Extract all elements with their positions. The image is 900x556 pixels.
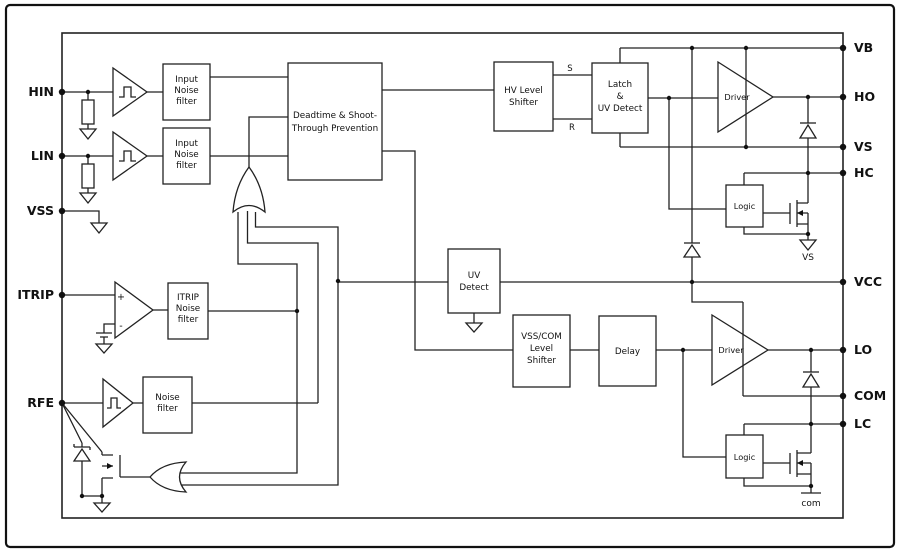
driver-low-label: Driver <box>718 345 744 355</box>
hv-shifter-label: Shifter <box>509 98 538 108</box>
junction-dot <box>336 279 340 283</box>
uv-detect-label: UV <box>468 271 480 281</box>
pin-label-vcc: VCC <box>854 274 882 289</box>
comparator-minus-label: - <box>119 321 122 332</box>
junction-dot <box>806 232 810 236</box>
hv-level-shifter-block <box>494 62 553 131</box>
uv-detect-block <box>448 249 500 313</box>
pin-label-rfe: RFE <box>27 395 54 410</box>
hin-pulldown-resistor <box>82 100 94 124</box>
pin-dot-itrip <box>59 292 65 298</box>
deadtime-label: Through Prevention <box>291 124 378 134</box>
pin-dot-ho <box>840 94 846 100</box>
junction-dot <box>806 95 810 99</box>
vsscom-label: Level <box>530 344 553 354</box>
junction-dot <box>690 280 694 284</box>
hin-filter-label: Noise <box>174 86 198 96</box>
pin-label-lo: LO <box>854 342 872 357</box>
junction-dot <box>744 46 748 50</box>
uv-detect-label: Detect <box>459 283 489 293</box>
itrip-filter-label: ITRIP <box>177 293 199 303</box>
rfe-filter-label: filter <box>157 404 178 414</box>
pin-dot-vcc <box>840 279 846 285</box>
junction-dot <box>744 145 748 149</box>
driver-high-label: Driver <box>724 92 750 102</box>
latch-label: & <box>617 92 624 102</box>
pin-label-ho: HO <box>854 89 875 104</box>
pin-dot-lc <box>840 421 846 427</box>
pin-dot-hc <box>840 170 846 176</box>
junction-dot <box>100 494 104 498</box>
junction-dot <box>681 348 685 352</box>
lin-pulldown-resistor <box>82 164 94 188</box>
pin-dot-com <box>840 393 846 399</box>
pin-dot-lin <box>59 153 65 159</box>
delay-label: Delay <box>615 347 640 357</box>
pin-label-vb: VB <box>854 40 873 55</box>
set-label: S <box>567 64 572 74</box>
junction-dot <box>806 171 810 175</box>
pin-dot-rfe <box>59 400 65 406</box>
lin-filter-label: Noise <box>174 150 198 160</box>
deadtime-label: Deadtime & Shoot- <box>293 111 377 121</box>
diagram-canvas: HIN LIN VSS ITRIP RFE VB HO VS HC VCC LO… <box>0 0 900 556</box>
reset-label: R <box>569 123 575 133</box>
rfe-filter-label: Noise <box>155 393 179 403</box>
lin-filter-label: Input <box>175 139 198 149</box>
pin-label-hin: HIN <box>28 84 54 99</box>
latch-label: Latch <box>608 80 632 90</box>
comparator-plus-label: + <box>117 292 125 303</box>
junction-dot <box>667 96 671 100</box>
itrip-filter-label: filter <box>178 315 199 325</box>
pin-dot-vb <box>840 45 846 51</box>
pin-label-lc: LC <box>854 416 871 431</box>
vsscom-label: Shifter <box>527 356 556 366</box>
lin-filter-label: filter <box>176 161 197 171</box>
vs-reference-label: VS <box>802 253 814 263</box>
logic-high-label: Logic <box>734 201 755 211</box>
junction-dot <box>809 348 813 352</box>
pin-dot-lo <box>840 347 846 353</box>
junction-dot <box>80 494 84 498</box>
junction-dot <box>809 484 813 488</box>
latch-label: UV Detect <box>598 104 643 114</box>
hin-filter-label: filter <box>176 97 197 107</box>
pin-label-vs: VS <box>854 139 873 154</box>
block-diagram: HIN LIN VSS ITRIP RFE VB HO VS HC VCC LO… <box>0 0 900 556</box>
com-reference-label: com <box>801 499 820 509</box>
logic-low-label: Logic <box>734 452 755 462</box>
pin-label-hc: HC <box>854 165 874 180</box>
junction-dot <box>86 90 90 94</box>
pin-label-vss: VSS <box>27 203 54 218</box>
pin-label-lin: LIN <box>31 148 54 163</box>
itrip-filter-label: Noise <box>176 304 200 314</box>
junction-dot <box>690 46 694 50</box>
junction-dot <box>809 422 813 426</box>
junction-dot <box>295 309 299 313</box>
pin-label-com: COM <box>854 388 886 403</box>
hv-shifter-label: HV Level <box>504 86 543 96</box>
pin-label-itrip: ITRIP <box>17 287 54 302</box>
hin-filter-label: Input <box>175 75 198 85</box>
deadtime-block <box>288 63 382 180</box>
junction-dot <box>86 154 90 158</box>
pin-dot-vs <box>840 144 846 150</box>
pin-dot-hin <box>59 89 65 95</box>
vsscom-label: VSS/COM <box>521 332 562 342</box>
pin-dot-vss <box>59 208 65 214</box>
